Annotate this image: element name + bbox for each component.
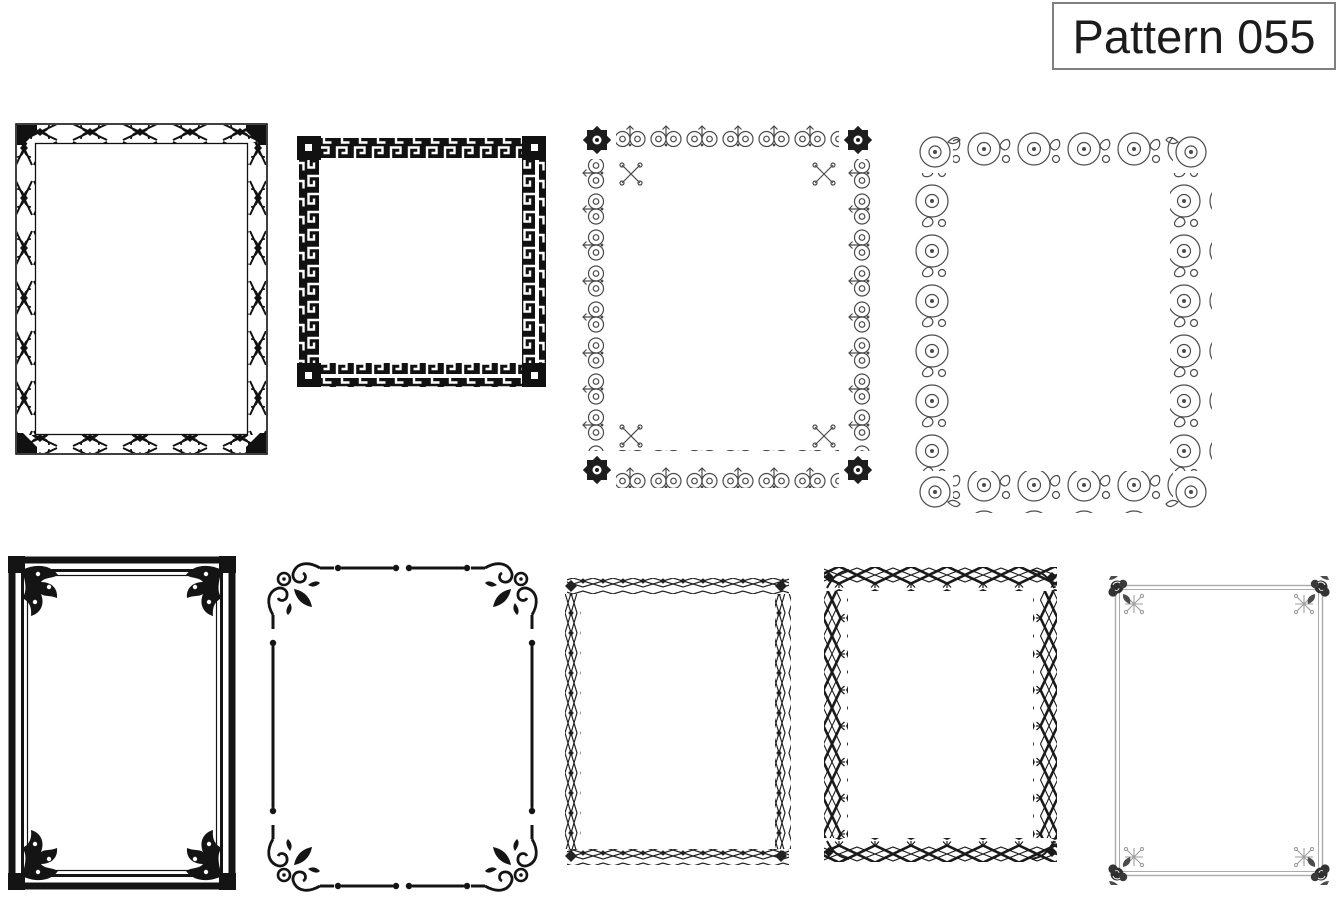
scroll-flourish-corners — [269, 564, 537, 891]
frame-thick-flourish-graphic — [8, 556, 236, 890]
rose-corners — [1108, 576, 1329, 885]
frame-thick-flourish — [8, 556, 236, 890]
frame-scroll-fleur-border — [576, 119, 879, 491]
frame-gray-rose-corner — [1106, 576, 1332, 885]
frame-arrow-cross-border-graphic — [15, 123, 268, 455]
frame-diamond-chain-graphic — [563, 573, 793, 870]
frame-bold-diamond — [821, 564, 1060, 865]
frame-wave-scroll-border — [911, 128, 1215, 516]
frame-greek-key-border-graphic — [297, 136, 546, 387]
flourish-corners — [8, 556, 236, 890]
frame-corner-scroll-graphic — [264, 559, 541, 895]
scroll-corners — [920, 137, 1206, 507]
frame-corner-scroll — [264, 559, 541, 895]
frame-diamond-chain — [563, 573, 793, 870]
pattern-title: Pattern 055 — [1072, 9, 1315, 64]
frame-arrow-cross-border — [15, 123, 268, 455]
frame-scroll-fleur-border-graphic — [576, 119, 879, 491]
pattern-sheet: Pattern 055 — [0, 0, 1336, 900]
star-rosette-corners — [583, 126, 872, 484]
pattern-title-box: Pattern 055 — [1052, 2, 1336, 70]
frame-greek-key-border — [297, 136, 546, 387]
frame-bold-diamond-graphic — [821, 564, 1060, 865]
frame-wave-scroll-border-graphic — [911, 128, 1215, 516]
frame-gray-rose-corner-graphic — [1106, 576, 1332, 885]
corner-sprigs — [620, 163, 835, 447]
